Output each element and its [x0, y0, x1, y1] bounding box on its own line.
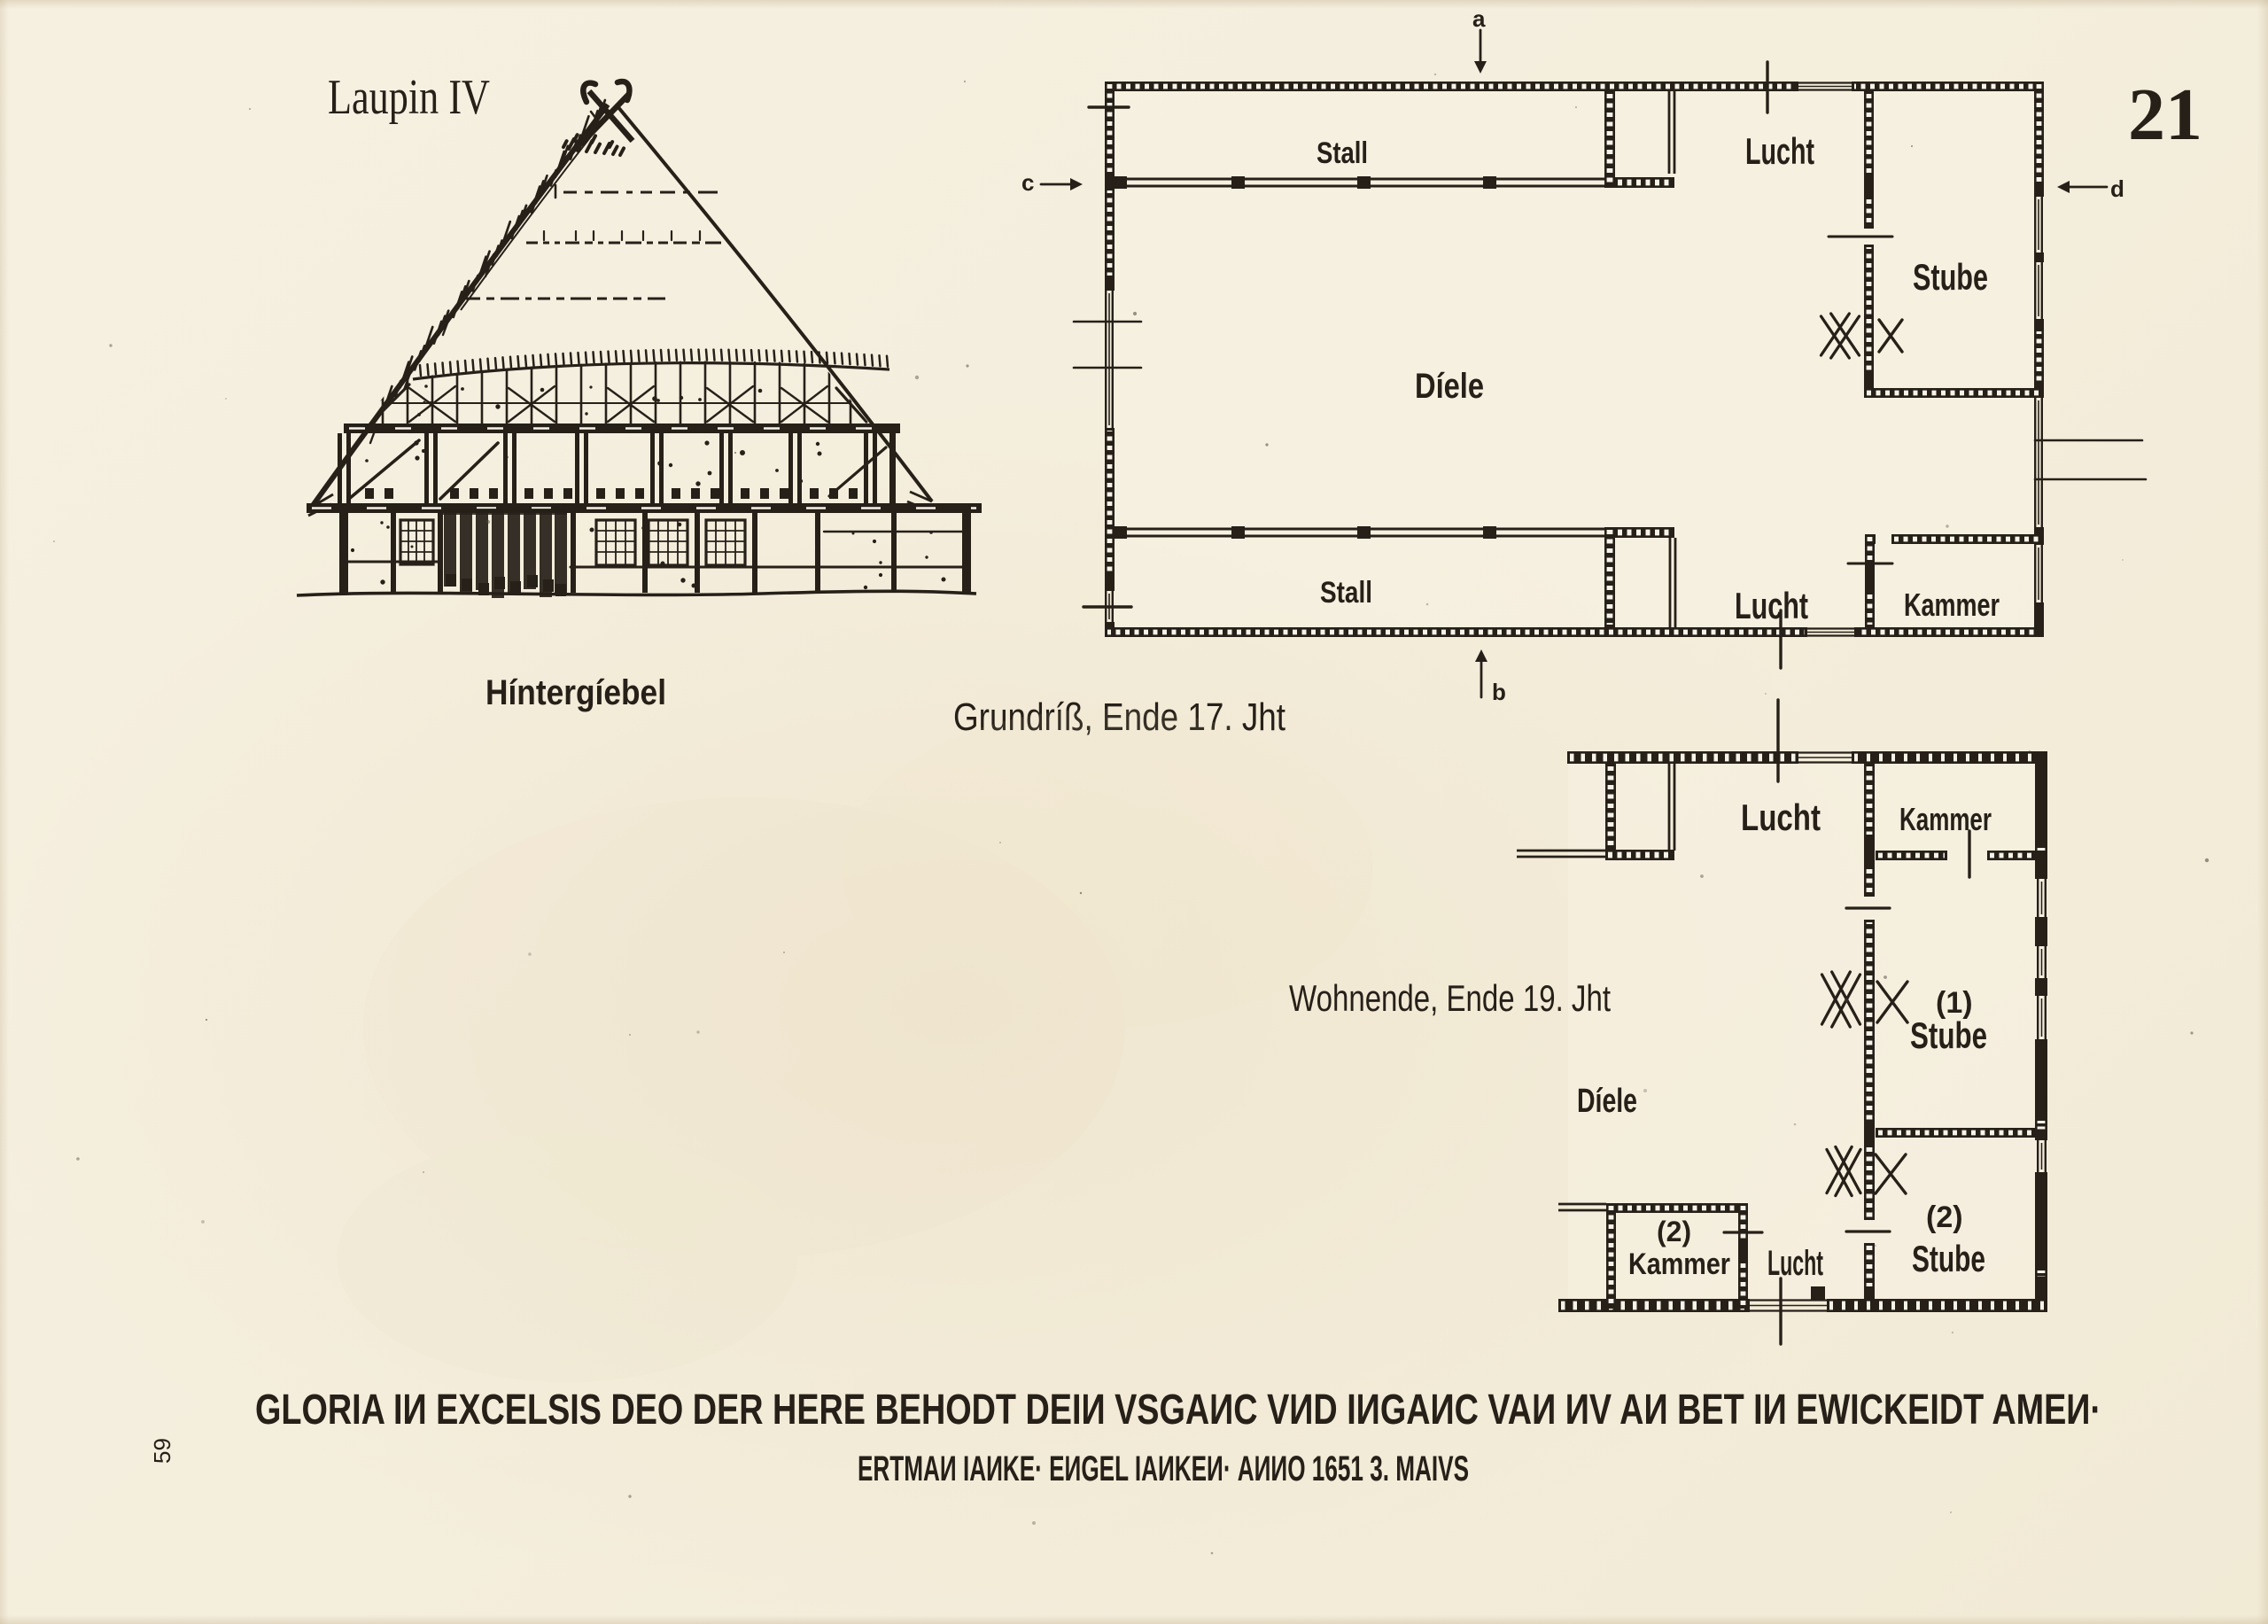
svg-text:Stube: Stube — [1912, 1238, 1985, 1279]
svg-text:ERTMAИ IAИKE· EИGEL IAИKEИ· AИ: ERTMAИ IAИKE· EИGEL IAИKEИ· AИИO 1651 3.… — [858, 1449, 1469, 1488]
svg-text:Díele: Díele — [1415, 367, 1484, 406]
svg-text:Lucht: Lucht — [1735, 585, 1808, 626]
svg-text:d: d — [2110, 175, 2124, 202]
svg-text:c: c — [1021, 169, 1034, 196]
svg-text:GLORIA IИ EXCELSIS DEO DER HER: GLORIA IИ EXCELSIS DEO DER HERE BEHODT D… — [255, 1387, 2101, 1434]
svg-text:b: b — [1492, 679, 1506, 705]
svg-text:Stube: Stube — [1910, 1014, 1987, 1056]
svg-text:Stall: Stall — [1317, 136, 1368, 170]
svg-text:Lucht: Lucht — [1741, 796, 1821, 838]
svg-text:(2): (2) — [1657, 1216, 1691, 1247]
svg-text:Wohnende, Ende 19. Jht: Wohnende, Ende 19. Jht — [1289, 977, 1611, 1019]
svg-text:Stube: Stube — [1913, 256, 1988, 298]
svg-text:Kammer: Kammer — [1628, 1247, 1730, 1281]
svg-text:Laupin IV: Laupin IV — [328, 70, 490, 125]
svg-text:59: 59 — [149, 1438, 175, 1464]
svg-text:Lucht: Lucht — [1767, 1244, 1823, 1283]
svg-text:21: 21 — [2128, 74, 2202, 156]
svg-text:Kammer: Kammer — [1904, 587, 2000, 623]
svg-text:Díele: Díele — [1577, 1083, 1637, 1120]
svg-text:Kammer: Kammer — [1899, 801, 1992, 837]
svg-text:Lucht: Lucht — [1745, 130, 1814, 172]
svg-text:Stall: Stall — [1320, 576, 1372, 610]
svg-text:a: a — [1472, 5, 1486, 32]
svg-text:(2): (2) — [1926, 1201, 1963, 1234]
svg-text:Híntergíebel: Híntergíebel — [485, 673, 666, 712]
